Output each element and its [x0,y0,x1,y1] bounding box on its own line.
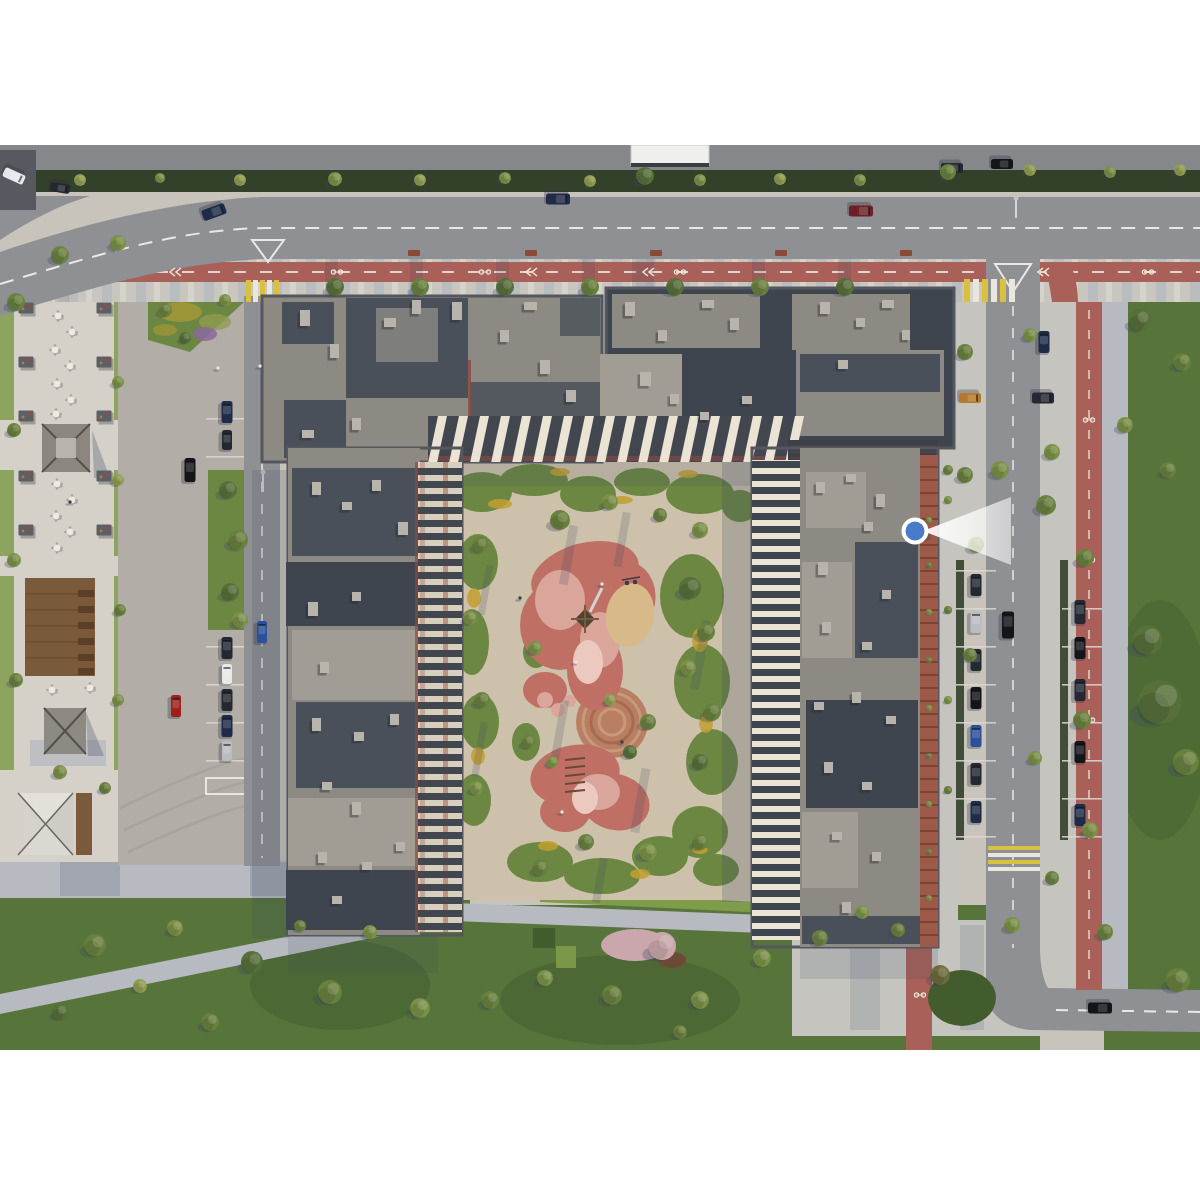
car [989,156,1013,170]
plaza-layer [0,292,248,865]
pergola-bench [97,525,114,539]
pergola-bench [19,357,36,371]
deck-bench [78,668,94,675]
far-road-lane [0,145,1200,170]
north-white-building [631,145,709,165]
car [1071,600,1086,626]
car [1035,331,1050,355]
car [219,741,233,763]
car [967,725,982,749]
roof-unit [450,302,463,323]
north-hedge-band [0,168,1200,192]
car [967,801,982,825]
car [168,695,182,719]
car [999,612,1015,641]
street-bench [408,250,420,256]
building-west-wing [286,448,462,935]
street-bench [775,250,787,256]
letterbox-top [0,0,1200,145]
pergola-bench [97,411,114,425]
car [219,430,233,452]
car [1071,637,1086,661]
car [218,401,233,425]
paving-east-outer [1102,302,1128,990]
pergola-bench [97,303,114,317]
street-bench [525,250,537,256]
letterbox-bottom [0,1050,1200,1200]
east-wing-courtyard-facade [752,460,800,940]
pergola-bench [19,471,36,485]
car [1071,741,1086,765]
courtyard-layer [452,462,758,903]
pergola-bench [97,357,114,371]
topiary-1 [533,928,555,948]
deck-bench [78,590,94,597]
roof-unit [298,310,311,329]
deck-bench [78,622,94,629]
pergola-bench [19,411,36,425]
topiary-2 [556,946,576,968]
car [218,637,233,661]
street-bench [900,250,912,256]
deck-bench [78,606,94,613]
deck-bench [78,654,94,661]
west-wing-courtyard-facade [418,462,462,932]
car [218,689,233,713]
car [957,390,981,404]
car [967,611,982,635]
masterplan-aerial-view [0,0,1200,1200]
car [967,763,982,787]
car [967,687,982,711]
car [967,574,982,598]
car [218,715,233,739]
car [847,202,873,217]
pavilion-deck [76,793,92,855]
scene-canvas [0,0,1200,1200]
pergola-bench [19,525,36,539]
car [1071,679,1086,703]
car [181,458,196,484]
car [1086,999,1112,1014]
deck-bench [78,638,94,645]
car [219,664,233,686]
car [1071,804,1086,828]
marker-dot-icon [906,522,925,541]
car [1030,389,1054,404]
car [254,621,268,645]
car [544,190,570,205]
street-bench [650,250,662,256]
